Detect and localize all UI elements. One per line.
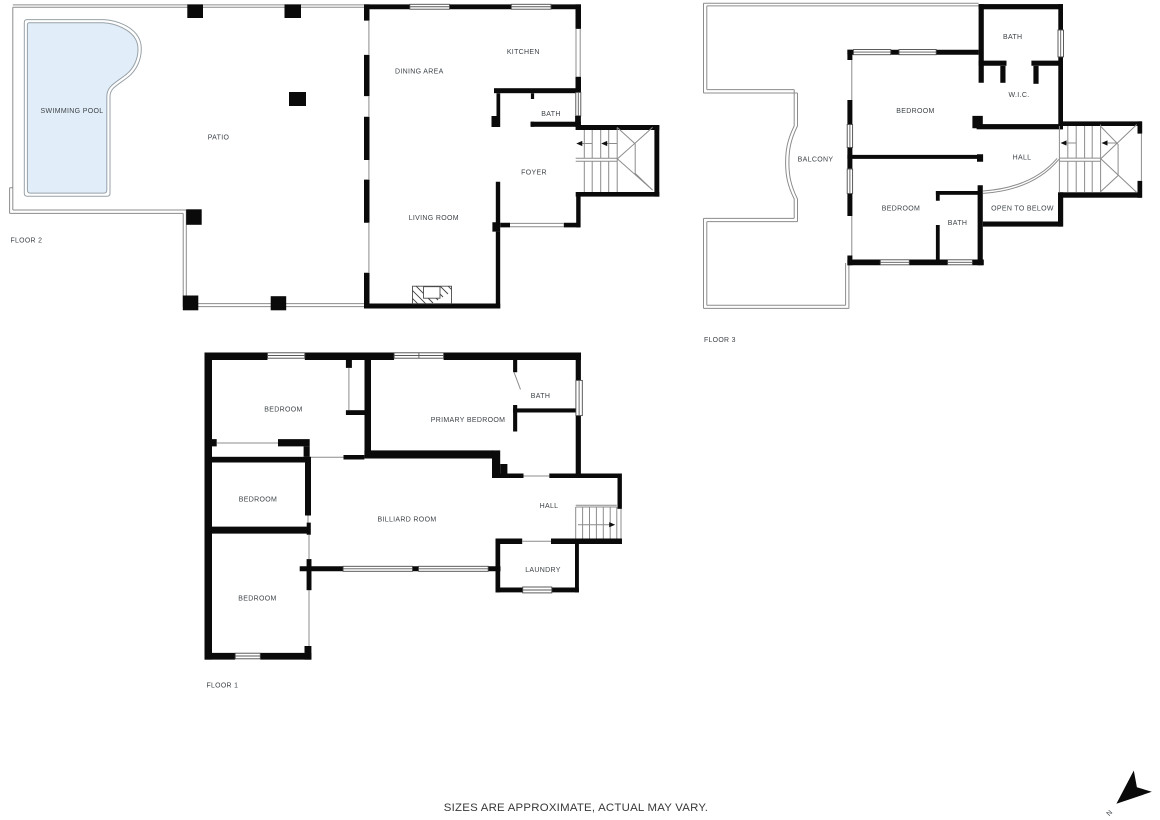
svg-text:BEDROOM: BEDROOM <box>239 497 277 504</box>
svg-text:FOYER: FOYER <box>521 169 547 176</box>
svg-text:BEDROOM: BEDROOM <box>264 407 302 414</box>
svg-text:FLOOR 1: FLOOR 1 <box>207 683 239 690</box>
svg-text:HALL: HALL <box>540 503 559 510</box>
svg-text:FLOOR 3: FLOOR 3 <box>704 337 736 344</box>
svg-text:PRIMARY BEDROOM: PRIMARY BEDROOM <box>431 417 506 424</box>
svg-text:LIVING ROOM: LIVING ROOM <box>409 215 459 222</box>
svg-text:SWIMMING POOL: SWIMMING POOL <box>41 108 104 115</box>
svg-text:BATH: BATH <box>541 111 560 118</box>
svg-text:KITCHEN: KITCHEN <box>507 49 540 56</box>
svg-text:OPEN TO BELOW: OPEN TO BELOW <box>991 206 1054 213</box>
svg-text:DINING AREA: DINING AREA <box>395 69 444 76</box>
svg-text:BATH: BATH <box>531 393 550 400</box>
svg-text:FLOOR 2: FLOOR 2 <box>11 238 43 245</box>
svg-text:HALL: HALL <box>1013 155 1032 162</box>
svg-text:SIZES ARE APPROXIMATE, ACTUAL: SIZES ARE APPROXIMATE, ACTUAL MAY VARY. <box>444 802 708 814</box>
svg-text:W.I.C.: W.I.C. <box>1009 92 1030 99</box>
svg-text:BEDROOM: BEDROOM <box>238 595 276 602</box>
svg-text:BILLIARD ROOM: BILLIARD ROOM <box>377 517 436 524</box>
svg-text:LAUNDRY: LAUNDRY <box>525 567 561 574</box>
svg-text:BATH: BATH <box>948 220 967 227</box>
svg-text:BEDROOM: BEDROOM <box>896 108 934 115</box>
svg-text:BALCONY: BALCONY <box>798 157 834 164</box>
svg-text:BEDROOM: BEDROOM <box>882 206 920 213</box>
svg-text:PATIO: PATIO <box>208 135 230 142</box>
svg-text:BATH: BATH <box>1003 34 1022 41</box>
